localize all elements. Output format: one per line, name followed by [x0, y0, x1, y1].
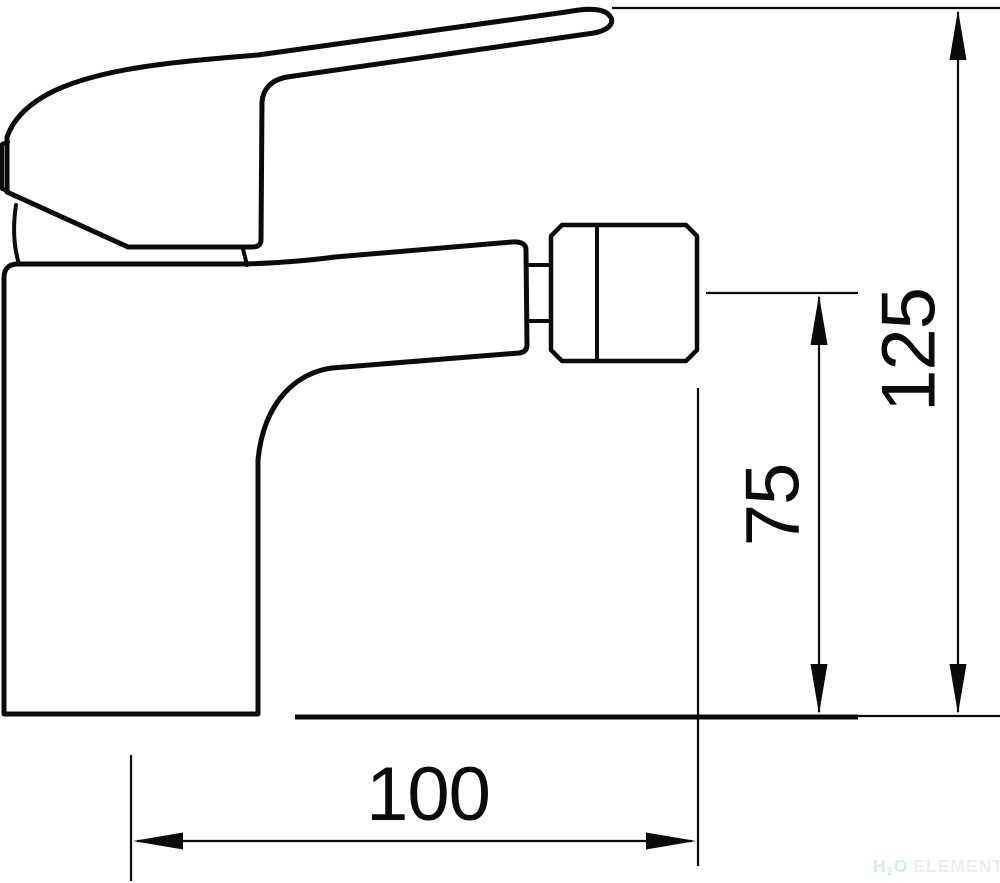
watermark: H2OELEMENT: [873, 856, 1000, 878]
dimension-spout-height: 75: [706, 293, 858, 714]
watermark-brand: ELEMENT: [913, 856, 1000, 876]
arrowhead-right-icon: [646, 833, 696, 850]
arrowhead-down-icon: [950, 664, 967, 714]
aerator-cap-outline: [551, 225, 697, 361]
dimension-label-base-depth: 100: [366, 752, 490, 837]
dimension-label-overall-height: 125: [867, 288, 952, 412]
watermark-h: H: [873, 856, 887, 876]
dimension-label-spout-height: 75: [731, 464, 816, 547]
handle-lever-outline: [7, 9, 612, 247]
cartridge-dome-left-edge: [14, 205, 19, 264]
watermark-text: H2OELEMENT: [873, 856, 1000, 878]
arrowhead-left-icon: [133, 833, 183, 850]
arrowhead-up-icon: [950, 10, 967, 60]
faucet-outline-group: [2, 9, 697, 714]
watermark-subscript: 2: [887, 866, 894, 878]
technical-drawing-canvas: 125 75 100 H2OELEMENT: [0, 0, 1000, 883]
arrowhead-down-icon: [811, 664, 828, 714]
floor-line-group: [295, 716, 1000, 717]
arrowhead-up-icon: [811, 295, 828, 345]
faucet-technical-drawing: 125 75 100 H2OELEMENT: [0, 0, 1000, 883]
watermark-o: O: [894, 856, 909, 876]
faucet-body-spout-outline: [4, 242, 527, 714]
